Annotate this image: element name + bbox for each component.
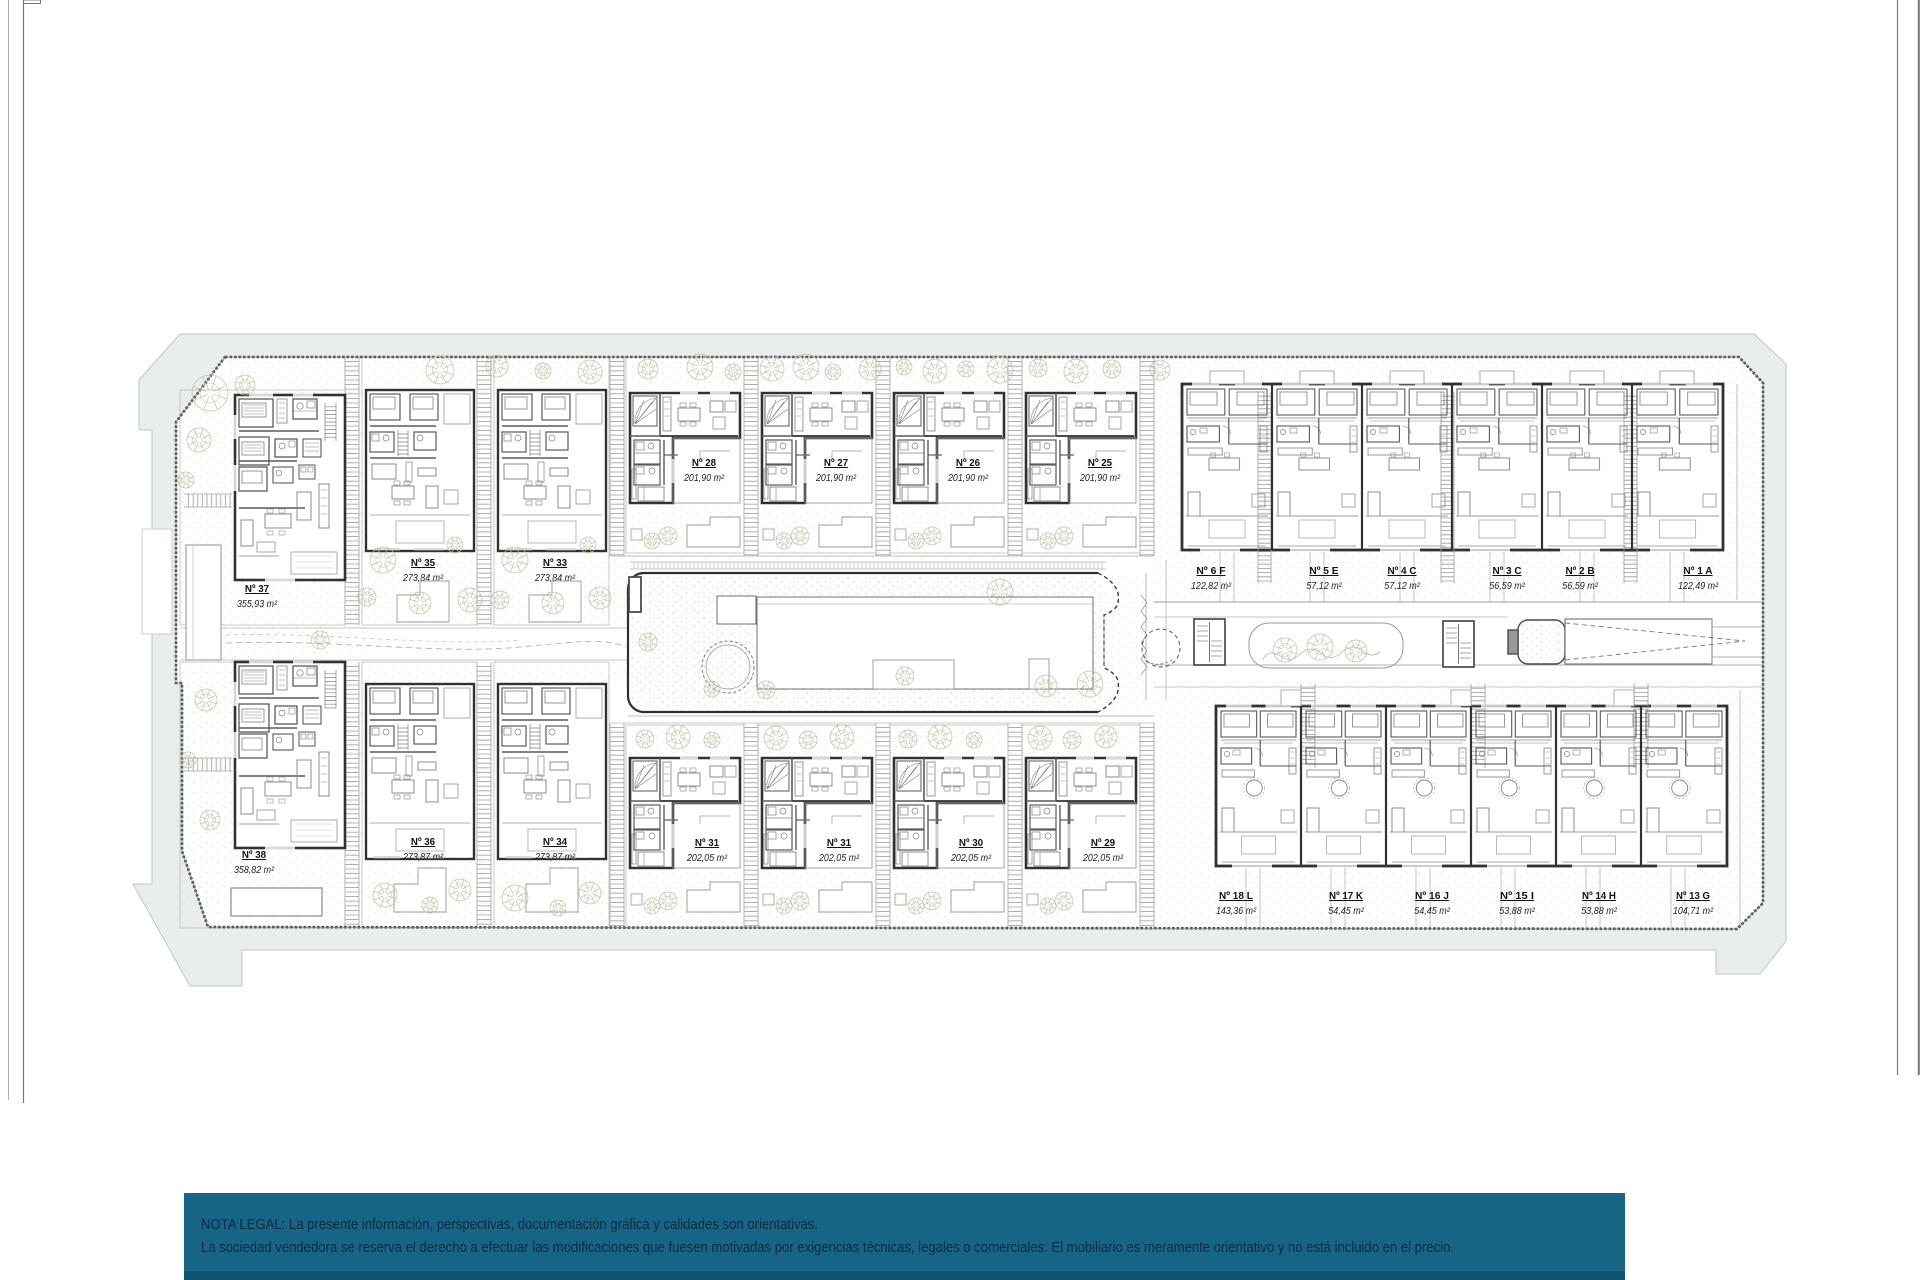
svg-text:Nº 36: Nº 36 bbox=[411, 837, 436, 848]
svg-text:Nº 34: Nº 34 bbox=[543, 837, 568, 848]
svg-text:Nº 38: Nº 38 bbox=[242, 850, 267, 861]
svg-text:Nº 28: Nº 28 bbox=[692, 458, 717, 469]
svg-text:Nº 37: Nº 37 bbox=[245, 584, 270, 595]
svg-text:Nº 17 K: Nº 17 K bbox=[1329, 891, 1364, 902]
svg-text:122,82 m²: 122,82 m² bbox=[1191, 581, 1232, 592]
svg-text:Nº 13 G: Nº 13 G bbox=[1676, 891, 1710, 902]
svg-text:Nº 16 J: Nº 16 J bbox=[1415, 891, 1449, 902]
svg-text:Nº 1 A: Nº 1 A bbox=[1683, 566, 1712, 577]
svg-text:57,12 m²: 57,12 m² bbox=[1384, 581, 1420, 592]
svg-text:273,87 m²: 273,87 m² bbox=[402, 852, 444, 863]
svg-text:Nº 27: Nº 27 bbox=[824, 458, 849, 469]
svg-text:202,05 m²: 202,05 m² bbox=[686, 853, 728, 864]
svg-text:Nº 3 C: Nº 3 C bbox=[1492, 566, 1521, 577]
svg-text:56,59 m²: 56,59 m² bbox=[1562, 581, 1598, 592]
svg-text:Nº 18 L: Nº 18 L bbox=[1219, 891, 1253, 902]
svg-text:56,59 m²: 56,59 m² bbox=[1489, 581, 1525, 592]
svg-text:Nº 26: Nº 26 bbox=[956, 458, 981, 469]
svg-text:Nº 31: Nº 31 bbox=[695, 838, 720, 849]
svg-text:Nº 5 E: Nº 5 E bbox=[1309, 566, 1338, 577]
svg-text:53,88 m²: 53,88 m² bbox=[1499, 906, 1535, 917]
svg-text:La sociedad vendedora se reser: La sociedad vendedora se reserva el dere… bbox=[201, 1239, 1454, 1256]
svg-text:Nº 4 C: Nº 4 C bbox=[1387, 566, 1416, 577]
svg-text:122,49 m²: 122,49 m² bbox=[1678, 581, 1719, 592]
svg-text:202,05 m²: 202,05 m² bbox=[1082, 853, 1124, 864]
svg-text:Nº 6 F: Nº 6 F bbox=[1196, 566, 1225, 577]
svg-text:201,90 m²: 201,90 m² bbox=[815, 473, 857, 484]
svg-text:54,45 m²: 54,45 m² bbox=[1328, 906, 1364, 917]
svg-text:Nº 29: Nº 29 bbox=[1091, 838, 1116, 849]
svg-text:358,82 m²: 358,82 m² bbox=[234, 865, 275, 876]
svg-text:273,87 m²: 273,87 m² bbox=[534, 852, 576, 863]
svg-text:NOTA LEGAL: La presente inform: NOTA LEGAL: La presente información, per… bbox=[201, 1216, 818, 1233]
svg-text:Nº 30: Nº 30 bbox=[959, 838, 984, 849]
svg-text:201,90 m²: 201,90 m² bbox=[947, 473, 989, 484]
svg-text:Nº 25: Nº 25 bbox=[1088, 458, 1113, 469]
svg-text:143,36 m²: 143,36 m² bbox=[1216, 906, 1257, 917]
svg-text:202,05 m²: 202,05 m² bbox=[950, 853, 992, 864]
svg-text:Nº 31: Nº 31 bbox=[827, 838, 852, 849]
svg-text:Nº 35: Nº 35 bbox=[411, 558, 436, 569]
svg-text:355,93 m²: 355,93 m² bbox=[237, 599, 278, 610]
svg-text:54,45 m²: 54,45 m² bbox=[1414, 906, 1450, 917]
svg-text:57,12 m²: 57,12 m² bbox=[1306, 581, 1342, 592]
svg-text:Nº 15 I: Nº 15 I bbox=[1500, 891, 1534, 902]
svg-text:Nº 14 H: Nº 14 H bbox=[1582, 891, 1616, 902]
svg-text:Nº 33: Nº 33 bbox=[543, 558, 568, 569]
svg-text:104,71 m²: 104,71 m² bbox=[1673, 906, 1714, 917]
svg-text:201,90 m²: 201,90 m² bbox=[1079, 473, 1121, 484]
svg-text:201,90 m²: 201,90 m² bbox=[683, 473, 725, 484]
svg-text:Nº 2 B: Nº 2 B bbox=[1565, 566, 1594, 577]
svg-text:202,05 m²: 202,05 m² bbox=[818, 853, 860, 864]
svg-text:53,88 m²: 53,88 m² bbox=[1581, 906, 1617, 917]
